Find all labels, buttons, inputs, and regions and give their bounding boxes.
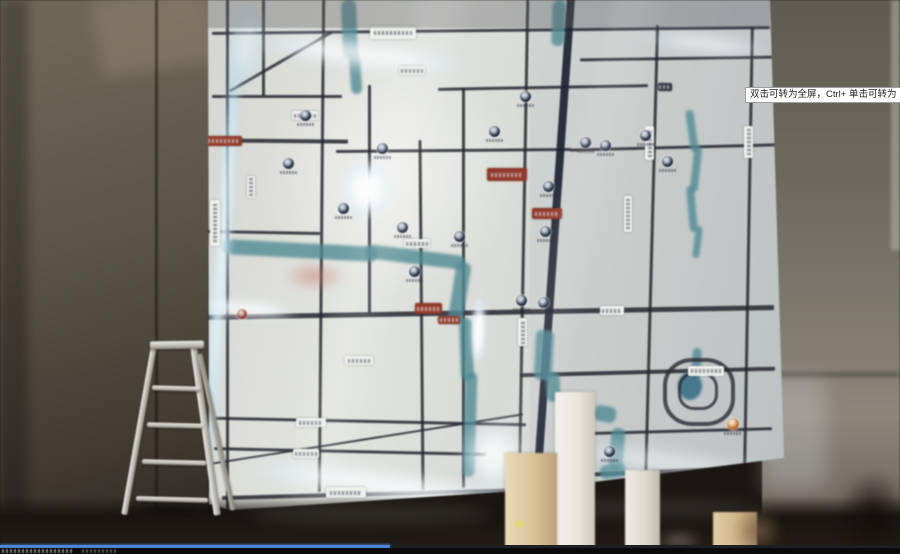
player-bottom-bar: [0, 548, 900, 554]
photo-content: [0, 0, 900, 554]
model-pillar: [555, 392, 595, 554]
ladder-top-cap: [150, 341, 204, 350]
pillar-sticker: [515, 521, 523, 527]
watermark-text-smudge: [2, 549, 74, 553]
model-pillar: [505, 453, 557, 554]
wall-shadow: [0, 0, 28, 554]
video-frame: 双击可转为全屏，Ctrl+ 单击可转为: [0, 0, 900, 554]
map-reflection-sheen: [208, 0, 784, 512]
left-wall: [0, 0, 208, 554]
foreground-object: [838, 470, 900, 554]
floor-reflection: [250, 505, 490, 523]
watermark-text-smudge: [82, 549, 116, 553]
wall-corner-highlight: [891, 0, 900, 250]
wall-seam: [762, 372, 900, 377]
fullscreen-tooltip: 双击可转为全屏，Ctrl+ 单击可转为: [745, 87, 900, 103]
wall-seam: [155, 0, 158, 554]
